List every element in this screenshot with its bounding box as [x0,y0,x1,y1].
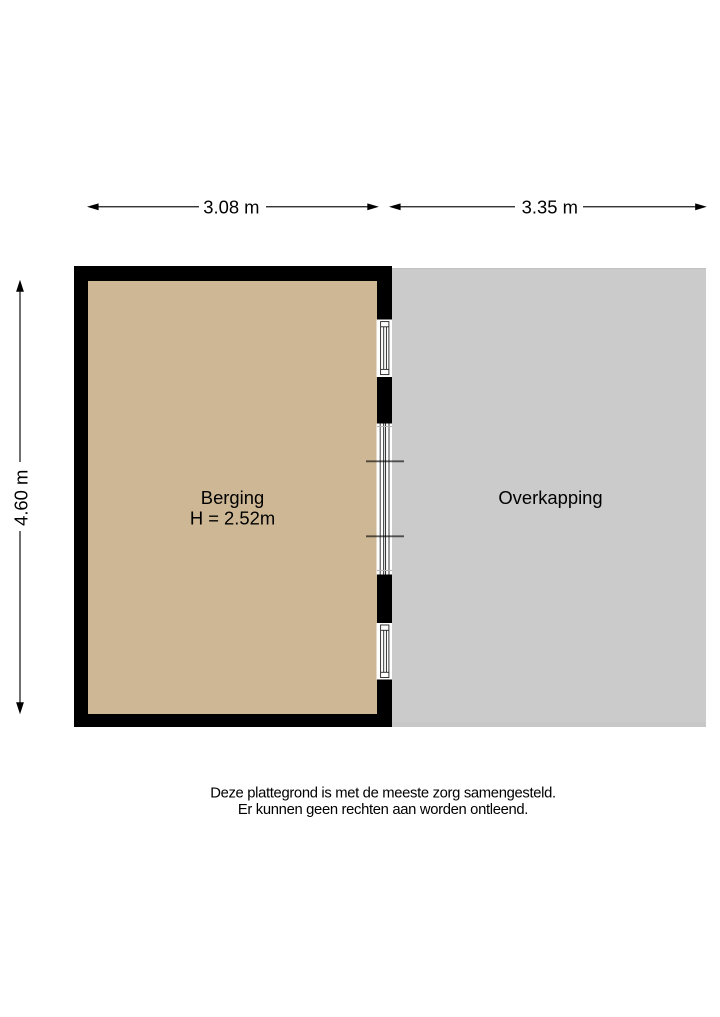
svg-text:4.60 m: 4.60 m [10,470,31,526]
svg-text:Er kunnen geen rechten aan wor: Er kunnen geen rechten aan worden ontlee… [238,802,528,818]
svg-text:Deze plattegrond is met de mee: Deze plattegrond is met de meeste zorg s… [210,786,556,802]
svg-text:3.35 m: 3.35 m [522,196,578,217]
svg-text:H = 2.52m: H = 2.52m [190,508,275,529]
svg-text:Berging: Berging [201,487,264,508]
svg-text:3.08 m: 3.08 m [203,196,259,217]
svg-text:Overkapping: Overkapping [498,487,602,508]
